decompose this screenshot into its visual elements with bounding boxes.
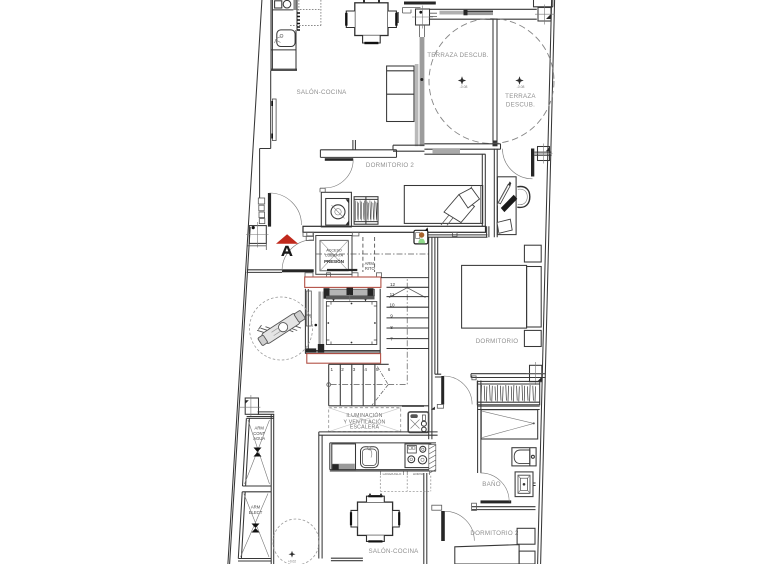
svg-text:3: 3 — [353, 367, 356, 372]
svg-text:ILUMINACIÓN: ILUMINACIÓN — [346, 412, 382, 419]
svg-text:9: 9 — [390, 314, 393, 319]
svg-text:HORNO: HORNO — [413, 472, 425, 476]
svg-text:1: 1 — [331, 367, 334, 372]
svg-text:11: 11 — [390, 292, 395, 297]
svg-text:6: 6 — [388, 367, 391, 372]
svg-text:CONT: CONT — [253, 431, 265, 436]
svg-text:DORMITORIO 2: DORMITORIO 2 — [470, 530, 519, 537]
svg-text:12: 12 — [390, 282, 396, 287]
svg-text:2: 2 — [341, 367, 344, 372]
svg-text:4: 4 — [364, 367, 367, 372]
svg-text:BAÑO: BAÑO — [482, 481, 501, 488]
svg-text:-0.08: -0.08 — [460, 85, 468, 89]
svg-text:ARM: ARM — [255, 426, 265, 431]
svg-text:ARM: ARM — [251, 505, 261, 510]
svg-text:AGUA: AGUA — [253, 436, 265, 441]
svg-text:DORMITORIO: DORMITORIO — [476, 338, 519, 345]
svg-text:PRESIÓN: PRESIÓN — [324, 259, 344, 264]
svg-text:RITO: RITO — [365, 266, 376, 271]
svg-text:TERRAZA DESCUB.: TERRAZA DESCUB. — [427, 52, 489, 59]
svg-text:7: 7 — [390, 336, 393, 341]
svg-text:SALÓN-COCINA: SALÓN-COCINA — [368, 548, 419, 555]
svg-text:+0.02: +0.02 — [288, 560, 296, 564]
svg-text:DESCUB.: DESCUB. — [506, 102, 535, 109]
svg-text:10: 10 — [389, 302, 395, 307]
svg-text:ACCESO: ACCESO — [326, 249, 342, 253]
svg-text:8: 8 — [390, 325, 393, 330]
svg-text:DORMITORIO 2: DORMITORIO 2 — [366, 162, 415, 169]
svg-text:SALÓN-COCINA: SALÓN-COCINA — [296, 89, 347, 96]
svg-text:ELECT: ELECT — [249, 510, 263, 515]
svg-text:-0.08: -0.08 — [517, 85, 525, 89]
svg-text:ESCALERA: ESCALERA — [350, 425, 380, 431]
svg-text:TERRAZA: TERRAZA — [505, 93, 536, 100]
svg-text:LAVAVAJILLO: LAVAVAJILLO — [383, 472, 402, 476]
svg-text:5: 5 — [376, 367, 379, 372]
